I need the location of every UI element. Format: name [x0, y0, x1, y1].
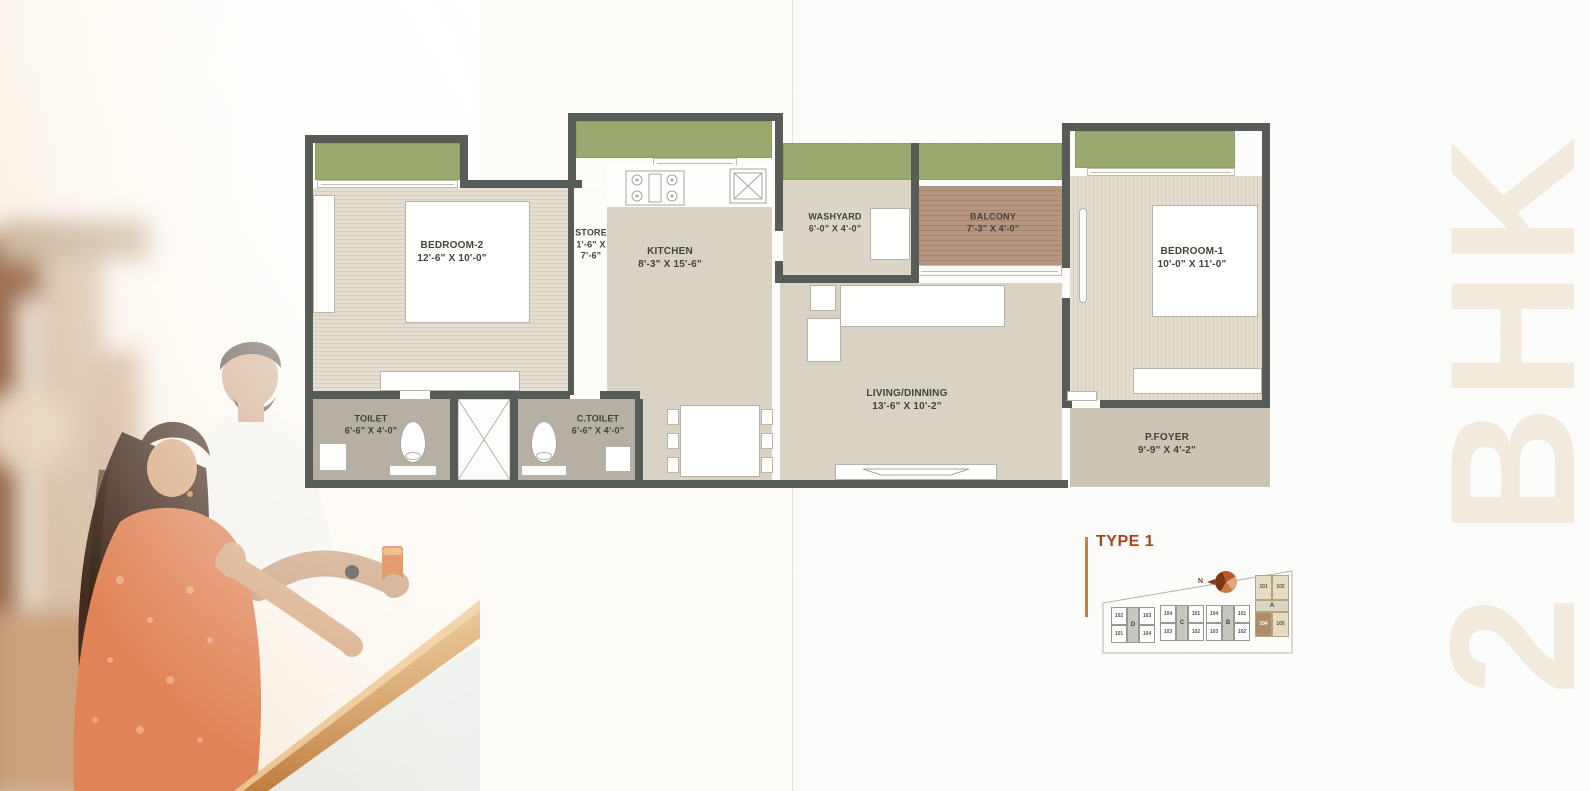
- room-name: KITCHEN: [638, 245, 702, 258]
- unit-cell: 101: [1188, 605, 1204, 623]
- wall: [775, 261, 783, 283]
- unit-cell: 101: [1111, 625, 1127, 643]
- bedroom1-wardrobe: [1133, 368, 1262, 394]
- room-label-ctoilet: C.TOILET 6'-6" X 4'-0": [572, 413, 624, 436]
- north-arrow-icon: [1207, 579, 1215, 585]
- keyplan-block-b: 104 103 B 101 102: [1206, 605, 1250, 641]
- sink-icon: [729, 168, 767, 204]
- unit-cell: 104: [1206, 605, 1222, 623]
- unit-cell: 101: [1255, 575, 1272, 600]
- unit-cell: 104: [1160, 605, 1176, 623]
- wall: [510, 399, 518, 480]
- dining-chair: [761, 433, 773, 449]
- key-plan: TYPE 1 102 101 D 103 104 104 103 C 101 1…: [1085, 533, 1297, 661]
- wall: [1262, 123, 1270, 408]
- ctoilet-wc-icon: [531, 421, 557, 463]
- room-name: C.TOILET: [572, 413, 624, 425]
- unit-cell-highlighted: 104: [1255, 612, 1272, 637]
- wall: [305, 480, 1068, 488]
- bedroom2-dresser: [380, 371, 520, 391]
- keyplan-block-d: 102 101 D 103 104: [1111, 607, 1155, 643]
- room-name: BEDROOM-1: [1158, 245, 1227, 258]
- dining-chair: [667, 433, 679, 449]
- washyard-balcony-planter-strip: [783, 143, 1062, 180]
- store-floor: [576, 188, 607, 395]
- unit-cell: 102: [1272, 575, 1289, 600]
- room-name: STORE: [575, 227, 607, 239]
- north-compass-icon: [1215, 571, 1237, 593]
- room-dims: 8'-3" X 15'-6": [638, 258, 702, 271]
- room-dims: 10'-0" X 11'-0": [1158, 258, 1227, 271]
- room-dims: 6'-6" X 4'-0": [572, 425, 624, 437]
- room-name: BEDROOM-2: [417, 239, 487, 252]
- side-label-text: 2 BHK: [1438, 118, 1588, 708]
- wall: [635, 399, 643, 480]
- dining-table: [680, 405, 760, 477]
- room-label-balcony: BALCONY 7'-3" X 4'-0": [967, 211, 1019, 234]
- wall: [305, 391, 400, 399]
- room-dims: 12'-6" X 10'-0": [417, 252, 487, 265]
- block-letter: D: [1127, 607, 1139, 643]
- room-dims: 9'-9" X 4'-2": [1138, 444, 1196, 457]
- wall: [1062, 400, 1072, 408]
- room-name: LIVING/DINNING: [866, 387, 947, 400]
- wall: [305, 135, 468, 143]
- main-door-leaf: [1067, 391, 1097, 401]
- room-name: WASHYARD: [808, 211, 861, 223]
- room-name: BALCONY: [967, 211, 1019, 223]
- wall: [911, 143, 919, 283]
- wall: [1100, 400, 1270, 408]
- room-dims: 7'-3" X 4'-0": [967, 223, 1019, 235]
- tv-arc: [861, 467, 971, 477]
- room-dims: 1'-6" X: [575, 239, 607, 251]
- room-dims: 13'-6" X 10'-2": [866, 400, 947, 413]
- unit-cell: 103: [1139, 607, 1155, 625]
- room-label-bedroom2: BEDROOM-2 12'-6" X 10'-0": [417, 239, 487, 265]
- room-name: TOILET: [345, 413, 397, 425]
- dining-chair: [667, 409, 679, 425]
- toilet-shelf: [389, 465, 437, 476]
- unit-cell: 102: [1188, 623, 1204, 641]
- room-label-store: STORE 1'-6" X 7'-6": [575, 227, 607, 262]
- wall: [450, 399, 458, 480]
- floor-plan: BEDROOM-2 12'-6" X 10'-0" STORE 1'-6" X …: [305, 113, 1272, 488]
- bedroom2-window: [317, 180, 458, 188]
- room-label-bedroom1: BEDROOM-1 10'-0" X 11'-0": [1158, 245, 1227, 271]
- bedroom1-planter-strip: [1075, 131, 1235, 168]
- wall: [305, 135, 313, 488]
- wall: [568, 113, 576, 188]
- room-dims: 6'-6" X 4'-0": [345, 425, 397, 437]
- bedroom1-window: [1087, 168, 1235, 176]
- shower-area-icon: [458, 399, 510, 480]
- room-dims: 6'-0" X 4'-0": [808, 223, 861, 235]
- wall: [568, 188, 574, 395]
- wall: [430, 391, 570, 399]
- wall: [783, 275, 911, 283]
- block-letter: B: [1222, 605, 1234, 641]
- unit-cell: 103: [1206, 623, 1222, 641]
- ctoilet-shelf: [521, 465, 567, 476]
- keyplan-block-c: 104 103 C 101 102: [1160, 605, 1204, 641]
- ctoilet-basin: [605, 446, 631, 472]
- room-name: P.FOYER: [1138, 431, 1196, 444]
- bedroom2-planter-strip: [315, 143, 460, 180]
- balcony-sliding-door: [917, 265, 1062, 276]
- stove-icon: [625, 170, 685, 206]
- unit-cell: 102: [1234, 623, 1250, 641]
- dining-chair: [667, 457, 679, 473]
- wall: [1062, 123, 1270, 131]
- side-table: [807, 318, 841, 362]
- block-letter: C: [1176, 605, 1188, 641]
- unit-cell: 103: [1160, 623, 1176, 641]
- bedroom1-door-leaf: [1079, 208, 1087, 303]
- room-dims: 7'-6": [575, 251, 607, 263]
- keyplan-block-a: 101 102 A 104 105: [1255, 575, 1289, 637]
- dining-chair: [761, 409, 773, 425]
- room-label-toilet: TOILET 6'-6" X 4'-0": [345, 413, 397, 436]
- wall: [600, 391, 640, 399]
- dining-chair: [761, 457, 773, 473]
- block-letter: A: [1255, 600, 1289, 612]
- kitchen-planter-strip: [576, 121, 772, 158]
- north-label: N: [1198, 578, 1203, 585]
- toilet-basin: [319, 443, 347, 471]
- side-label-2bhk: 2 BHK: [1438, 118, 1588, 708]
- unit-cell: 102: [1111, 607, 1127, 625]
- unit-cell: 104: [1139, 625, 1155, 643]
- washing-machine: [870, 208, 910, 260]
- side-table: [810, 285, 836, 311]
- room-label-kitchen: KITCHEN 8'-3" X 15'-6": [638, 245, 702, 271]
- unit-cell: 101: [1234, 605, 1250, 623]
- wall: [775, 113, 783, 231]
- wall: [568, 113, 780, 121]
- wall: [460, 180, 582, 188]
- wall: [1062, 123, 1070, 268]
- unit-cell: 105: [1272, 612, 1289, 637]
- room-label-washyard: WASHYARD 6'-0" X 4'-0": [808, 211, 861, 234]
- room-label-pfoyer: P.FOYER 9'-9" X 4'-2": [1138, 431, 1196, 457]
- sofa: [840, 285, 1005, 327]
- bedroom2-wardrobe: [313, 195, 335, 313]
- toilet-wc-icon: [400, 421, 426, 463]
- room-label-living: LIVING/DINNING 13'-6" X 10'-2": [866, 387, 947, 413]
